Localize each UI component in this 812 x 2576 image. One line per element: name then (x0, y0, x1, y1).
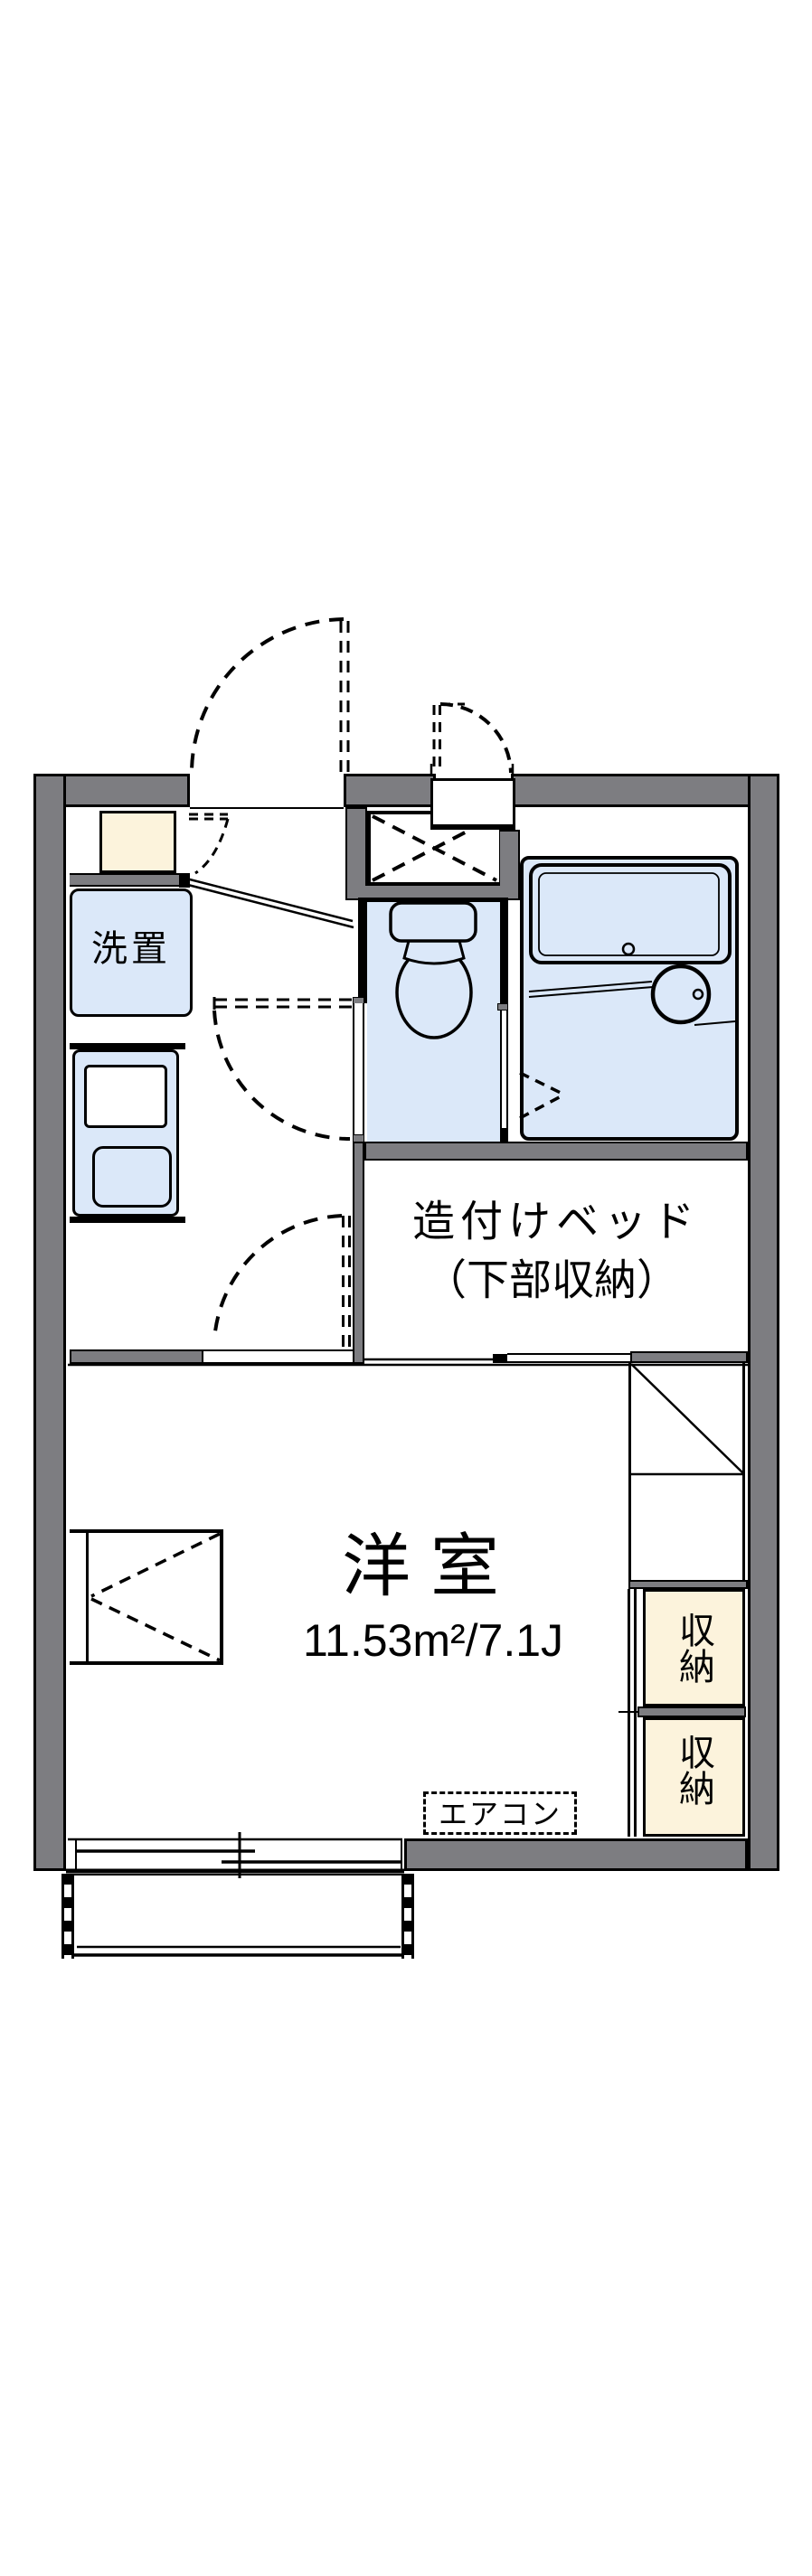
aircon-label: エアコン (439, 1800, 562, 1829)
storage-upper-label: 収納 (675, 1612, 712, 1684)
built-in-bed-label: 造付けベッド (412, 1200, 700, 1243)
laundry-label: 洗置 (91, 931, 171, 967)
floor-plan: 洗置 造付けベッド （下部収納） 洋室 11.53m²/7.1J エアコン 収納… (0, 0, 812, 2576)
western-room-label: 洋室 (342, 1533, 519, 1602)
plan-labels: 洗置 造付けベッド （下部収納） 洋室 11.53m²/7.1J エアコン 収納… (0, 0, 812, 2576)
western-room-area-label: 11.53m²/7.1J (303, 1618, 563, 1663)
built-in-bed-note-label: （下部収納） (424, 1259, 679, 1302)
storage-lower-label: 収納 (675, 1734, 712, 1806)
